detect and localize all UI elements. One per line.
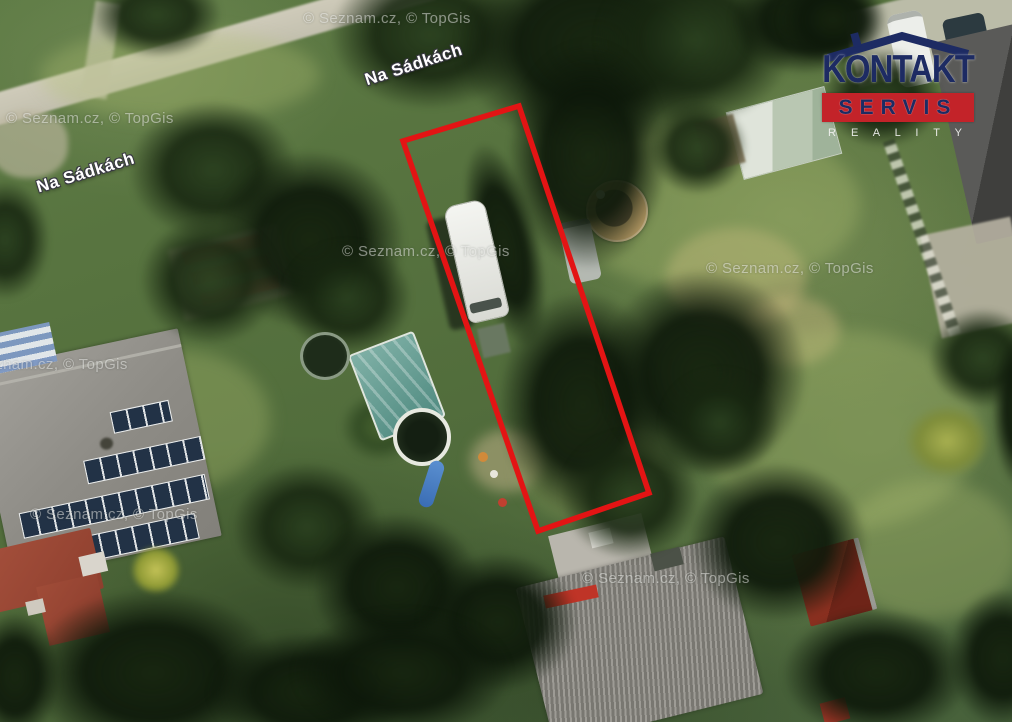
copyright-watermark: © Seznam.cz, © TopGis: [706, 260, 874, 277]
logo-red-banner: SERVIS: [822, 93, 974, 122]
copyright-watermark: © Seznam.cz, © TopGis: [303, 10, 471, 27]
tree-canopy: [688, 462, 868, 622]
play-item: [498, 498, 507, 507]
wall-patch: [78, 551, 108, 576]
play-item: [490, 470, 498, 478]
logo-text-servis: SERVIS: [822, 93, 974, 122]
copyright-watermark: © Seznam.cz, © TopGis: [6, 110, 174, 127]
trailer: [477, 323, 511, 359]
roof-vent: [99, 436, 114, 450]
logo-text-reality: R E A L I T Y: [822, 127, 974, 139]
yellow-green-tree: [904, 404, 990, 478]
copyright-watermark: © Seznam.cz, © TopGis: [0, 356, 128, 373]
copyright-watermark: © Seznam.cz, © TopGis: [342, 243, 510, 260]
trampoline: [300, 332, 350, 380]
tree-canopy: [140, 215, 280, 345]
tree-canopy: [648, 100, 748, 195]
kontakt-servis-logo: KONTAKT SERVIS R E A L I T Y: [812, 30, 984, 148]
copyright-watermark: © Seznam.cz, © TopGis: [582, 570, 750, 587]
logo-text-kontakt: KONTAKT: [820, 47, 976, 92]
copyright-watermark: © Seznam.cz, © TopGis: [30, 506, 198, 523]
tree-canopy: [660, 368, 780, 478]
solar-panel-row: [110, 400, 173, 434]
trampoline: [393, 408, 451, 466]
play-item: [478, 452, 488, 462]
aerial-map-canvas[interactable]: KONTAKT SERVIS R E A L I T Y Na SádkáchN…: [0, 0, 1012, 722]
